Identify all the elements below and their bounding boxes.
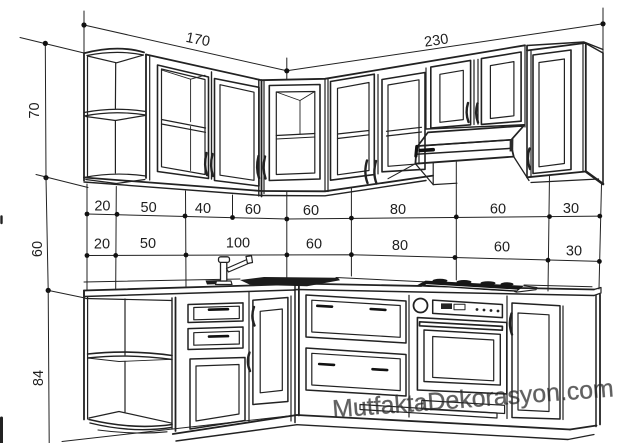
svg-text:60: 60	[245, 202, 261, 218]
svg-text:80: 80	[390, 202, 406, 218]
svg-text:60: 60	[494, 240, 510, 256]
svg-text:40: 40	[195, 201, 211, 217]
svg-text:84: 84	[31, 370, 47, 386]
svg-text:70: 70	[27, 102, 43, 118]
svg-text:60: 60	[490, 202, 506, 218]
svg-text:60: 60	[306, 237, 322, 253]
svg-text:50: 50	[141, 200, 157, 216]
svg-text:50: 50	[140, 236, 156, 252]
svg-text:60: 60	[303, 203, 319, 219]
svg-text:20: 20	[94, 237, 110, 253]
svg-text:30: 30	[566, 244, 582, 260]
svg-text:100: 100	[226, 236, 250, 252]
svg-text:20: 20	[94, 199, 110, 215]
svg-text:60: 60	[30, 241, 46, 257]
svg-text:80: 80	[392, 238, 408, 254]
svg-text:30: 30	[563, 201, 579, 217]
